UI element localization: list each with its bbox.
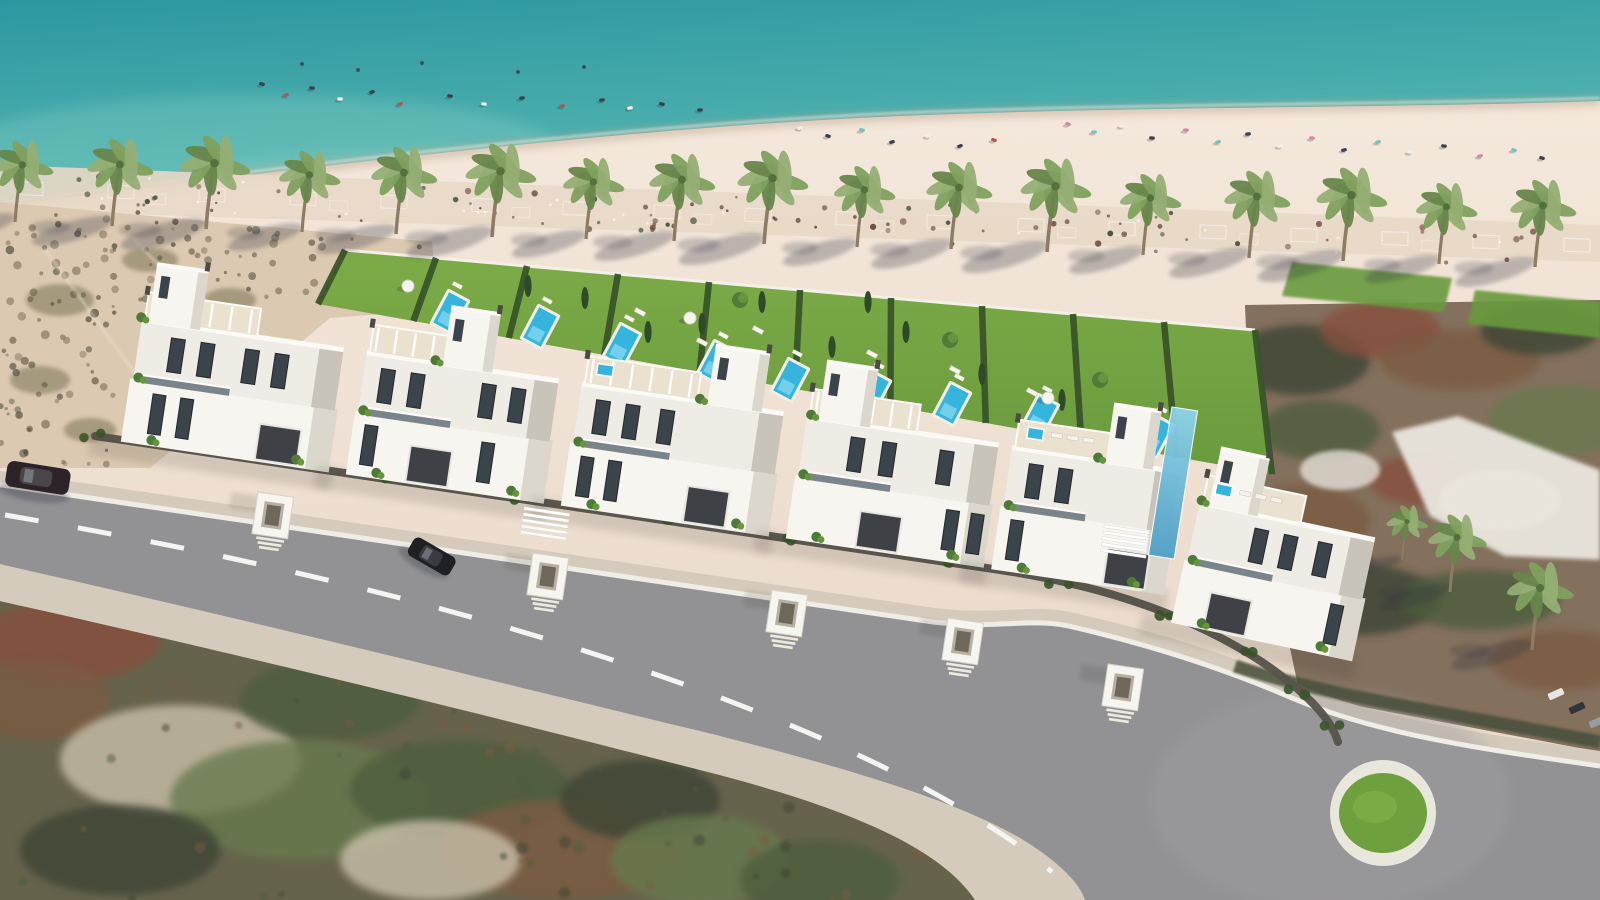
cypress-tree [864, 291, 871, 313]
cypress-tree [581, 287, 588, 309]
cypress-tree [644, 321, 651, 343]
parasol [402, 280, 414, 292]
scene-svg [0, 0, 1600, 900]
cypress-tree [698, 313, 705, 335]
garage-door [1203, 592, 1252, 636]
cypress-tree [758, 291, 765, 313]
rooftop-jacuzzi [1027, 427, 1044, 440]
cypress-tree [1058, 389, 1065, 411]
roundabout [1330, 760, 1436, 866]
rooftop-jacuzzi [596, 364, 613, 377]
parasol [1042, 392, 1054, 404]
garage-door [683, 486, 730, 528]
cypress-tree [524, 275, 531, 297]
garage-door [855, 511, 902, 553]
garden-hedge [890, 298, 891, 406]
cypress-tree [828, 336, 835, 358]
aerial-render-image [0, 0, 1600, 900]
garage-door [405, 446, 452, 488]
rooftop-jacuzzi [1215, 483, 1233, 497]
parasol [684, 312, 696, 324]
cypress-tree [902, 321, 909, 343]
cypress-tree [978, 363, 985, 385]
